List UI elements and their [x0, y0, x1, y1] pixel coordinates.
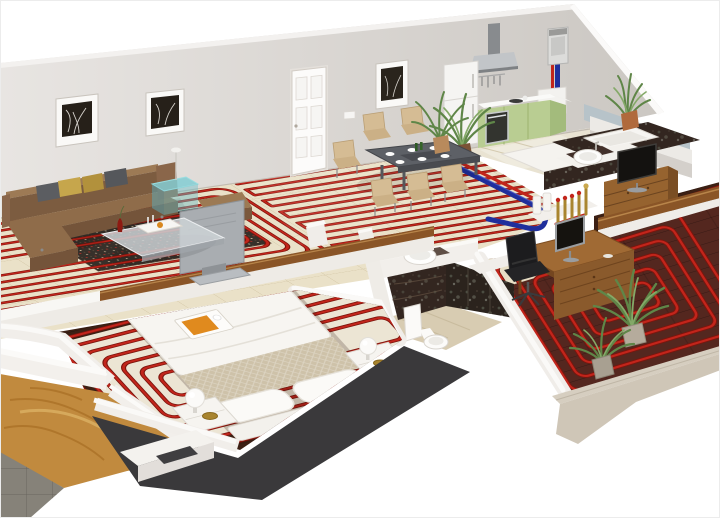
door-knob [294, 124, 297, 127]
sphere-lamp [360, 338, 377, 355]
wall-boiler [548, 27, 568, 65]
bottle [415, 143, 418, 151]
heating-manifold [528, 183, 598, 224]
plant-pot [433, 135, 450, 154]
kettle [523, 96, 528, 101]
cooktop [509, 99, 523, 103]
sphere-lamp [186, 389, 205, 408]
entry-door [290, 65, 328, 177]
floorplan-render: 3D isometric cutaway floor plan of an ap… [0, 0, 720, 518]
bottle [420, 142, 423, 150]
gold-bowl [203, 413, 218, 420]
expansion-vessel [533, 196, 541, 214]
framed-art-3 [376, 60, 408, 109]
desk-tray [603, 254, 613, 258]
framed-art-1 [56, 94, 98, 147]
plant-pot [592, 355, 614, 379]
wall-switch [344, 111, 355, 119]
floorplan-svg: 3D isometric cutaway floor plan of an ap… [0, 0, 720, 518]
oven-icon [486, 111, 508, 144]
framed-art-2 [146, 89, 184, 136]
